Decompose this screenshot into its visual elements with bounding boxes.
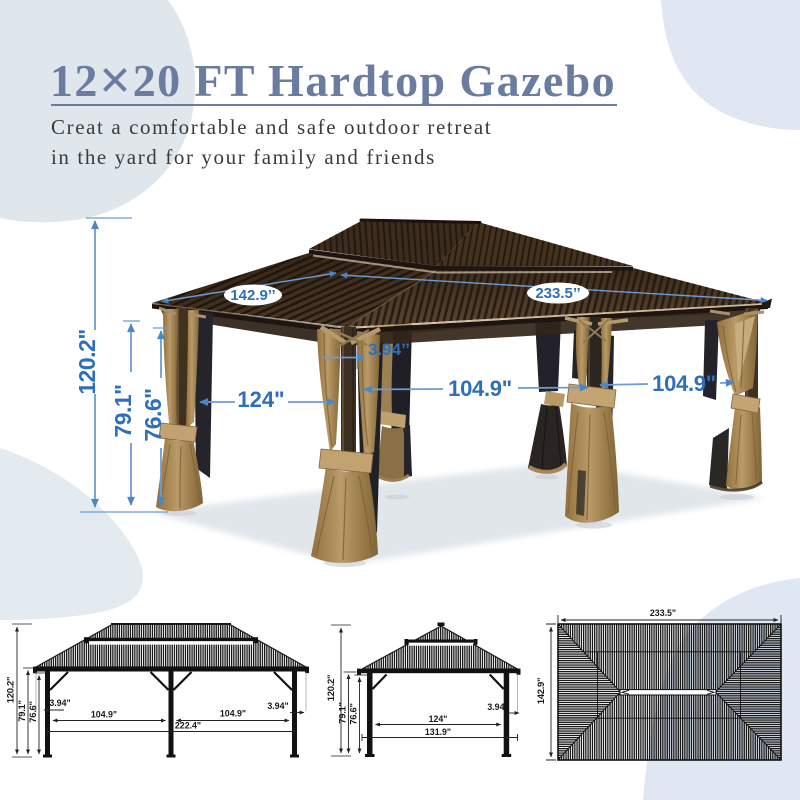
svg-text:120.2": 120.2"	[326, 675, 337, 701]
svg-text:131.9": 131.9"	[425, 727, 451, 737]
svg-text:124": 124"	[429, 714, 448, 724]
svg-text:76.6": 76.6"	[140, 388, 166, 441]
svg-text:124": 124"	[237, 387, 284, 412]
svg-text:3.94": 3.94"	[487, 702, 508, 712]
svg-text:in the yard for your family an: in the yard for your family and friends	[51, 145, 436, 169]
svg-text:76.6": 76.6"	[349, 703, 360, 725]
svg-text:233.5’’: 233.5’’	[535, 285, 580, 302]
svg-text:233.5": 233.5"	[650, 608, 676, 618]
svg-text:120.2": 120.2"	[6, 677, 17, 703]
svg-text:79.1": 79.1"	[338, 702, 349, 724]
svg-text:12×20 FT Hardtop Gazebo: 12×20 FT Hardtop Gazebo	[50, 49, 616, 112]
svg-text:76.6": 76.6"	[28, 701, 39, 723]
svg-text:120.2": 120.2"	[74, 329, 100, 394]
svg-text:3.94": 3.94"	[49, 698, 70, 708]
svg-text:222.4": 222.4"	[175, 721, 201, 731]
svg-text:3.94": 3.94"	[267, 701, 288, 711]
svg-text:Creat a comfortable and safe o: Creat a comfortable and safe outdoor ret…	[51, 115, 492, 139]
svg-text:104.9": 104.9"	[652, 371, 716, 396]
svg-text:79.1": 79.1"	[110, 384, 136, 437]
svg-text:79.1": 79.1"	[17, 700, 28, 722]
svg-text:104.9": 104.9"	[220, 709, 246, 719]
svg-text:3.94’’: 3.94’’	[368, 340, 410, 359]
svg-text:142.9": 142.9"	[536, 678, 547, 704]
svg-text:104.9": 104.9"	[448, 376, 512, 401]
svg-text:142.9’’: 142.9’’	[230, 287, 275, 304]
svg-text:104.9": 104.9"	[91, 710, 117, 720]
